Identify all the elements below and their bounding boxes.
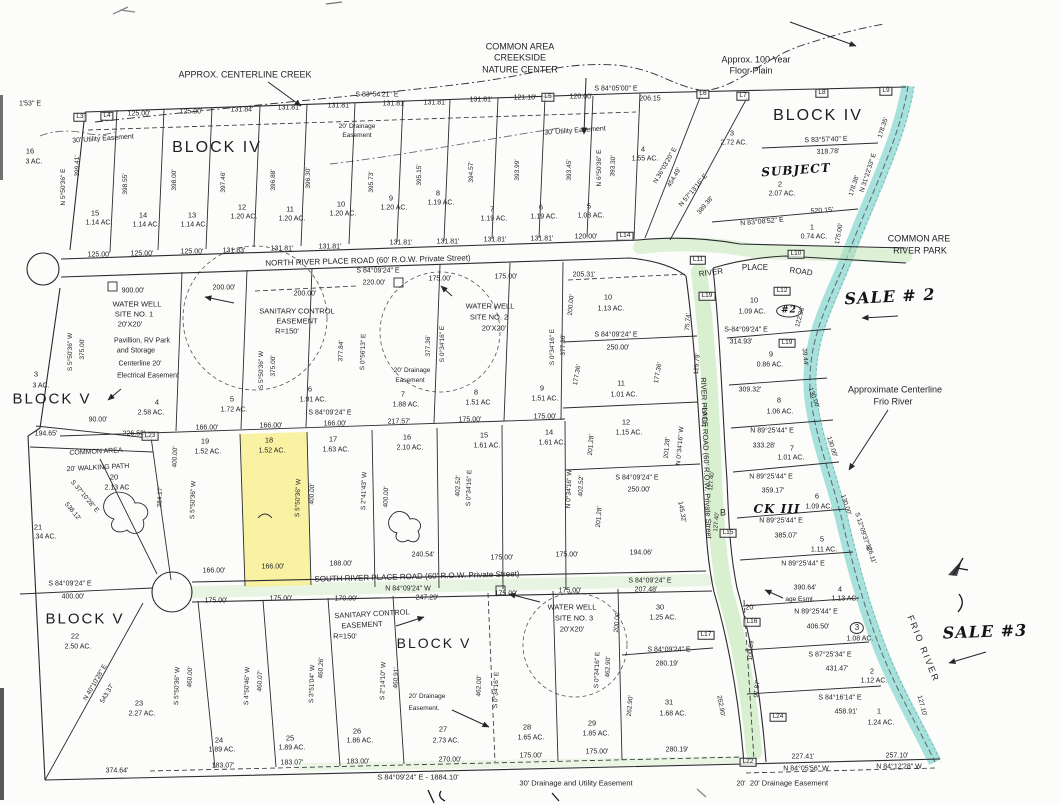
map-label: 175.00': [270, 596, 293, 603]
map-label: 257.10': [886, 753, 909, 760]
map-label: S 84°09'24" E: [647, 647, 690, 654]
map-label: 20' Drainage: [339, 124, 376, 131]
map-label: 10: [337, 200, 345, 208]
map-label: BLOCK V: [45, 612, 124, 627]
map-label: 1.19 AC.: [481, 216, 508, 223]
map-label: 384.17': [157, 486, 165, 507]
map-label: 1.86 AC.: [347, 738, 374, 745]
map-label: 1.91 AC.: [300, 397, 327, 404]
map-label: 18: [265, 436, 273, 444]
map-label: 460.07': [257, 670, 264, 691]
map-label: 0.86 AC.: [757, 362, 784, 369]
map-label: 175.00': [534, 414, 557, 421]
map-label: 20': [745, 605, 754, 612]
map-label: 23: [135, 699, 143, 707]
creek-centerline: [40, 24, 885, 164]
map-label: 400.00': [309, 483, 316, 504]
map-label: L3: [73, 113, 86, 122]
map-label: 2.07 AC.: [769, 191, 796, 198]
map-label: EASEMENT: [341, 620, 383, 630]
scan-artifacts: [0, 95, 4, 800]
map-label: L9: [879, 87, 892, 96]
map-label: 393.99': [515, 159, 522, 180]
map-label: L6: [696, 90, 709, 99]
map-label: 2: [778, 180, 782, 188]
map-label: 270.00': [439, 757, 462, 764]
map-label: 200.00': [294, 291, 317, 298]
map-label: S 0°34'16" E: [594, 652, 602, 689]
map-label: N 89°25'44" E: [759, 518, 803, 525]
map-label: S 5°50'36" W: [295, 479, 303, 518]
map-label: 460.91': [393, 667, 400, 688]
map-label: S 0°34'16" E: [550, 329, 557, 366]
map-label: 27: [439, 725, 447, 733]
map-label: 377.36': [426, 335, 433, 356]
map-label: S 87°25'34" E: [808, 652, 851, 659]
map-label: 3 AC.: [25, 159, 42, 166]
map-label: 20'X20': [482, 324, 507, 332]
map-label: 377.84': [338, 340, 345, 361]
map-label: age Esmt.: [785, 597, 814, 604]
map-label: 3: [730, 129, 734, 137]
map-label: 462.90': [605, 656, 612, 677]
map-label: 16: [403, 433, 411, 441]
map-label: 1.20 AC.: [231, 214, 258, 221]
map-label: 2: [870, 667, 874, 675]
map-label: 20'X20': [118, 320, 143, 328]
map-label: 20: [110, 473, 118, 481]
map-label: 9: [769, 350, 773, 358]
map-label: BLOCK V: [397, 636, 472, 650]
map-label: S-84°09'24" E: [724, 327, 768, 334]
map-label: 31: [665, 698, 673, 706]
map-label: 194.65': [35, 431, 58, 438]
map-label: 4: [838, 585, 842, 593]
map-label: 4: [155, 398, 159, 406]
map-label: 183.07': [212, 763, 235, 770]
map-label: 25: [286, 734, 294, 742]
map-label: 3: [34, 370, 38, 378]
map-label: 166.00': [324, 421, 347, 428]
map-label: 1.19 AC.: [428, 200, 455, 207]
map-label: 6: [815, 492, 819, 500]
map-label: B: [720, 509, 726, 518]
map-label: COMMON AREA: [486, 43, 555, 52]
map-label: 1.89 AC.: [279, 745, 306, 752]
map-label: 8: [777, 396, 781, 404]
map-label: 28: [523, 723, 531, 731]
map-label: 30: [656, 603, 664, 611]
map-label: S 84°09'24" E: [628, 578, 671, 585]
map-label: 3 AC.: [32, 383, 49, 390]
map-label: RIVER PARK: [893, 247, 947, 256]
map-label: 1.52 AC.: [259, 448, 286, 455]
map-label: L5: [541, 93, 554, 102]
map-label: 29: [588, 719, 596, 727]
map-label: 393.30': [610, 155, 617, 176]
map-label: S 4°50'46" W: [244, 667, 252, 706]
map-label: 1.19 AC.: [531, 214, 558, 221]
map-label: 396.88': [271, 169, 278, 190]
map-label: 1.89 AC.: [209, 747, 236, 754]
map-label: 20'X20': [560, 625, 585, 633]
map-label: 15: [480, 431, 488, 439]
map-label: 1.01 AC.: [778, 455, 805, 462]
map-label: 183.00': [347, 759, 370, 766]
map-label: 1.14 AC.: [133, 222, 160, 229]
map-label: 2.73 AC.: [433, 738, 460, 745]
map-label: 1.51 AC: [466, 400, 491, 407]
map-label: 1.08 AC.: [578, 213, 605, 220]
map-label: 1.20 AC.: [381, 205, 408, 212]
map-label: 1.13 AC.: [598, 306, 625, 313]
map-label: 125.00': [88, 252, 111, 259]
map-label: 1.24 AC.: [868, 720, 895, 727]
map-label: 309.32': [739, 387, 762, 394]
map-label: 400.00': [383, 486, 390, 507]
map-label: 396.30': [306, 167, 313, 188]
map-label: S 0°34'16" E: [466, 470, 474, 507]
map-label: S 84°09'24" E: [615, 475, 658, 482]
map-label: L7: [736, 92, 749, 101]
map-label: N 89°25'44" E: [794, 609, 838, 616]
map-label: 375.00': [271, 355, 278, 376]
map-label: 125.00': [181, 249, 204, 256]
map-label: 1.72 AC.: [221, 407, 248, 414]
map-label: 393.45': [567, 159, 574, 180]
map-label: 17: [329, 435, 337, 443]
map-label: 400.00': [172, 446, 179, 467]
map-label: 131.84': [231, 107, 254, 114]
map-label: 194.06': [630, 550, 653, 557]
map-label: N 89°25'44" E: [750, 428, 794, 435]
map-label: 5: [587, 202, 591, 210]
map-label: 1.09 AC.: [739, 309, 766, 316]
map-label: WATER WELL: [548, 603, 597, 611]
map-label: 131.81': [319, 244, 342, 251]
map-label: 1.85 AC.: [583, 731, 610, 738]
map-label: N 84°09'24" W: [385, 586, 431, 593]
map-label: 1.08 AC.: [847, 636, 874, 643]
map-label: S 5°50'36" W: [190, 481, 198, 520]
map-label: 175.00': [205, 598, 228, 605]
map-label: 1.20 AC.: [279, 216, 306, 223]
map-label: 402.52': [455, 475, 462, 496]
map-label: L14: [617, 232, 634, 241]
map-label: L22: [740, 758, 757, 767]
map-label: Electrical Easement: [117, 373, 179, 380]
map-label: 333.28': [753, 443, 776, 450]
map-label: L12: [774, 287, 791, 296]
map-label: 1.51 AC.: [532, 396, 559, 403]
map-label: 170.00': [335, 596, 358, 603]
map-label: 1.15 AC.: [616, 430, 643, 437]
map-label: 1.65 AC.: [518, 735, 545, 742]
map-label: SITE NO. 2: [470, 313, 508, 321]
map-label: WATER WELL: [113, 300, 162, 308]
map-label: 1.13 AC.: [832, 596, 859, 603]
map-label: 20' Drainage: [409, 694, 446, 701]
map-label: APPROX. CENTERLINE CREEK: [178, 71, 311, 80]
map-label: BLOCK IV: [773, 108, 863, 124]
map-label: L23: [142, 432, 159, 441]
map-label: 131.81': [484, 237, 507, 244]
map-label: 16: [26, 147, 34, 155]
map-label: 20' Drainage: [394, 368, 431, 375]
map-label: 9: [540, 384, 544, 392]
map-label: 1.25 AC.: [650, 615, 677, 622]
map-label: 175.00': [520, 753, 543, 760]
map-label: 280.19': [666, 747, 689, 754]
map-label: S 2°14'10" W: [380, 662, 388, 701]
map-label: Easement.: [408, 706, 439, 713]
map-label: 120.00': [570, 94, 593, 101]
map-label: 166.00': [196, 425, 219, 432]
map-label: S 0°34'16" E: [493, 672, 501, 709]
map-label: SANITARY CONTROL: [259, 307, 334, 315]
map-label: 175.00': [495, 591, 518, 598]
map-label: 2.13 AC: [105, 485, 130, 492]
map-label: 227.41': [792, 754, 815, 761]
map-label: 21: [34, 523, 42, 531]
map-label: S 84°09'24" E: [594, 332, 637, 339]
map-label: Approximate Centerline: [848, 386, 942, 395]
map-label: N 5°50'36" E: [61, 169, 68, 206]
map-label: 9: [389, 194, 393, 202]
map-label: and Storage: [117, 348, 155, 355]
map-label: Pavillion, RV Park: [114, 338, 170, 345]
map-label: CREEKSIDE: [494, 54, 546, 63]
map-label: 7: [790, 444, 794, 452]
map-label: 207.48': [635, 587, 658, 594]
easement-lines: [88, 112, 935, 773]
map-label: 22: [71, 632, 79, 640]
map-label: 175.00': [556, 552, 579, 559]
map-label: 1: [877, 707, 881, 715]
map-label: Approx. 100 Year: [721, 56, 790, 65]
map-label: 2.58 AC.: [138, 410, 165, 417]
map-label: 1.52 AC.: [195, 449, 222, 456]
map-label: 183.07': [281, 760, 304, 767]
map-label: 385.07': [775, 533, 798, 540]
map-label: 375.00': [80, 338, 87, 359]
map-label: R=150': [333, 632, 357, 640]
map-label: 175.00': [559, 588, 582, 595]
plat-map: COMMON AREACREEKSIDENATURE CENTERAPPROX.…: [0, 0, 1060, 805]
map-label: 131.81': [470, 97, 493, 104]
map-label: S 3°51'04" W: [309, 665, 317, 704]
map-label: 7: [401, 390, 405, 398]
map-label: L19: [779, 339, 796, 348]
river-highlight: [810, 86, 941, 762]
map-label: 30' Drainage and Utility Easement: [519, 779, 632, 787]
map-label: 125.00': [180, 109, 203, 116]
map-label: 2.10 AC.: [397, 445, 424, 452]
map-label: S 84°05'00" E: [594, 86, 637, 93]
map-label: 1.61 AC.: [539, 440, 566, 447]
map-label: 398.55': [123, 173, 130, 194]
map-label: 131.81': [328, 103, 351, 110]
map-label: 2.72 AC.: [721, 140, 748, 147]
map-label: S 0°34'16" E: [440, 326, 447, 363]
map-label: 166.00': [203, 568, 226, 575]
map-label: 20' Drainage Easement: [750, 779, 828, 787]
map-label: S 5°50'36" W: [68, 333, 75, 371]
map-label: 397.46': [221, 171, 228, 192]
map-label: PLACE: [742, 264, 768, 272]
map-label: 206.15: [639, 96, 660, 103]
map-label: 7: [490, 205, 494, 213]
map-label: 318.78': [817, 148, 840, 156]
map-label: 131.81': [424, 100, 447, 107]
map-label: 2.50 AC.: [65, 644, 92, 651]
map-label: 166.00': [262, 564, 285, 571]
map-label: S 2°41'43" W: [361, 472, 369, 511]
map-label: Frio River: [873, 398, 912, 407]
map-label: 90.00': [89, 417, 108, 424]
map-label: S 84°09'24" E: [48, 581, 91, 588]
map-label: 131.81': [278, 105, 301, 112]
map-label: 247.29': [416, 595, 439, 602]
map-label: 175.00': [586, 749, 609, 756]
map-label: 24: [215, 736, 223, 744]
map-label: BLOCK V: [12, 392, 91, 407]
map-label: 11: [617, 379, 625, 387]
map-label: 2.27 AC.: [129, 711, 156, 718]
map-label: 188.00': [330, 561, 353, 568]
map-label: 1.14 AC.: [86, 220, 113, 227]
map-label: 12: [238, 203, 246, 211]
map-label: 1.06 AC.: [767, 409, 794, 416]
map-label: 200.00': [213, 285, 236, 292]
map-label: S 83°54'21" E: [355, 92, 398, 99]
map-label: 431.47': [826, 666, 849, 673]
map-label: 402.52': [578, 475, 585, 496]
map-label: 1.61 AC.: [474, 443, 501, 450]
map-label: 314.93': [730, 339, 753, 346]
map-label: NATURE CENTER: [482, 66, 558, 75]
map-label: 1.63 AC.: [323, 447, 350, 454]
map-label: SALE #3: [942, 623, 1027, 642]
map-label: 131.83': [223, 248, 246, 255]
map-label: 394.57': [469, 161, 476, 182]
map-label: 250.00': [607, 345, 630, 352]
map-label: 1.88 AC.: [393, 402, 420, 409]
map-label: Easement: [342, 133, 371, 140]
map-label: L10: [788, 250, 805, 259]
map-label: 1: [810, 223, 814, 231]
map-label: 15: [91, 209, 99, 217]
map-label: 166.00': [260, 423, 283, 430]
map-label: 460.26': [318, 657, 325, 678]
map-label: R=150': [275, 327, 299, 335]
map-label: 395.15': [417, 164, 424, 185]
map-label: 374.64': [106, 768, 129, 775]
map-label: 1'53" E: [19, 101, 41, 108]
map-label: SALE # 2: [844, 287, 936, 308]
map-label: 175.00': [429, 276, 452, 283]
map-label: BLOCK IV: [172, 140, 262, 156]
map-label: COMMON ARE: [888, 235, 951, 244]
map-label: N 84°05'56" W: [783, 766, 829, 773]
map-label: 4: [641, 145, 645, 153]
map-label: S 84°09'24" E - 1884.10': [377, 773, 459, 781]
map-label: 11: [286, 205, 294, 213]
map-label: 131.81': [437, 239, 460, 246]
map-label: .34 AC.: [34, 534, 57, 541]
map-label: 900.00': [122, 288, 145, 295]
map-label: 1.20 AC.: [330, 211, 357, 218]
map-label: 1.12 AC.: [861, 678, 888, 685]
map-label: 1.68 AC.: [660, 711, 687, 718]
map-label: 390.64': [794, 585, 817, 592]
map-label: 205.31': [573, 272, 596, 279]
map-label: SITE NO. 1: [115, 310, 153, 318]
map-label: N 6°50'36" E: [597, 150, 604, 187]
map-label: 458.91': [835, 709, 858, 716]
map-label: 14: [139, 211, 147, 219]
map-label: 1.09 AC.: [806, 504, 833, 511]
map-label: S 84°16'14" E: [818, 695, 861, 702]
map-label: 399.41': [75, 155, 82, 176]
map-label: N 89°25'44" E: [781, 561, 825, 568]
map-label: 26: [353, 727, 361, 735]
map-label: 400.00': [62, 594, 85, 601]
map-label: 19: [201, 437, 209, 445]
map-label: L16: [744, 618, 761, 627]
map-label: 377.36': [561, 334, 568, 355]
map-label: N 84°12'28" W: [876, 764, 922, 771]
map-label: 460.00': [187, 666, 194, 687]
map-label: 12: [622, 418, 630, 426]
map-label: S 0°56'13" E: [360, 334, 368, 371]
map-label: 8: [474, 388, 478, 396]
map-label: 131.81': [390, 240, 413, 247]
map-label: 131.81': [271, 246, 294, 253]
map-label: L11: [690, 256, 706, 265]
map-label: 175.00': [459, 417, 482, 424]
map-label: Floor Plain: [729, 67, 772, 76]
map-label: 13: [188, 211, 196, 219]
map-label: L17: [698, 631, 715, 640]
map-label: 131.81': [531, 236, 554, 243]
map-label: 462.00': [476, 675, 483, 696]
map-label: 120.00': [575, 234, 598, 241]
map-label: 1.14 AC.: [181, 222, 208, 229]
map-label: S 83°57'40" E: [804, 136, 847, 145]
map-label: 6: [539, 203, 543, 211]
map-label: S 5°50'36" W: [259, 351, 266, 389]
map-label: EASEMENT: [276, 317, 317, 325]
map-label: 217.57': [388, 419, 411, 426]
map-label: 175.00': [495, 274, 518, 281]
map-label: 121.10': [514, 95, 537, 102]
map-label: N 0°34'16" W: [566, 470, 574, 509]
map-label: 240.54': [412, 552, 435, 559]
map-label: 39.44': [800, 348, 808, 366]
map-label: 5: [820, 535, 824, 543]
map-label: Centerline 20': [119, 361, 162, 368]
map-label: 125.00': [128, 111, 151, 118]
map-label: 14: [545, 428, 553, 436]
map-label: 280.19': [656, 661, 679, 668]
map-label: 220.00': [363, 280, 386, 287]
map-label: S 84°09'24" E: [308, 410, 351, 417]
map-label: L19: [699, 292, 716, 301]
map-label: N 89°25'44" E: [749, 474, 793, 481]
map-label: 125.00': [131, 251, 154, 258]
map-label: SITE NO. 3: [555, 614, 593, 622]
